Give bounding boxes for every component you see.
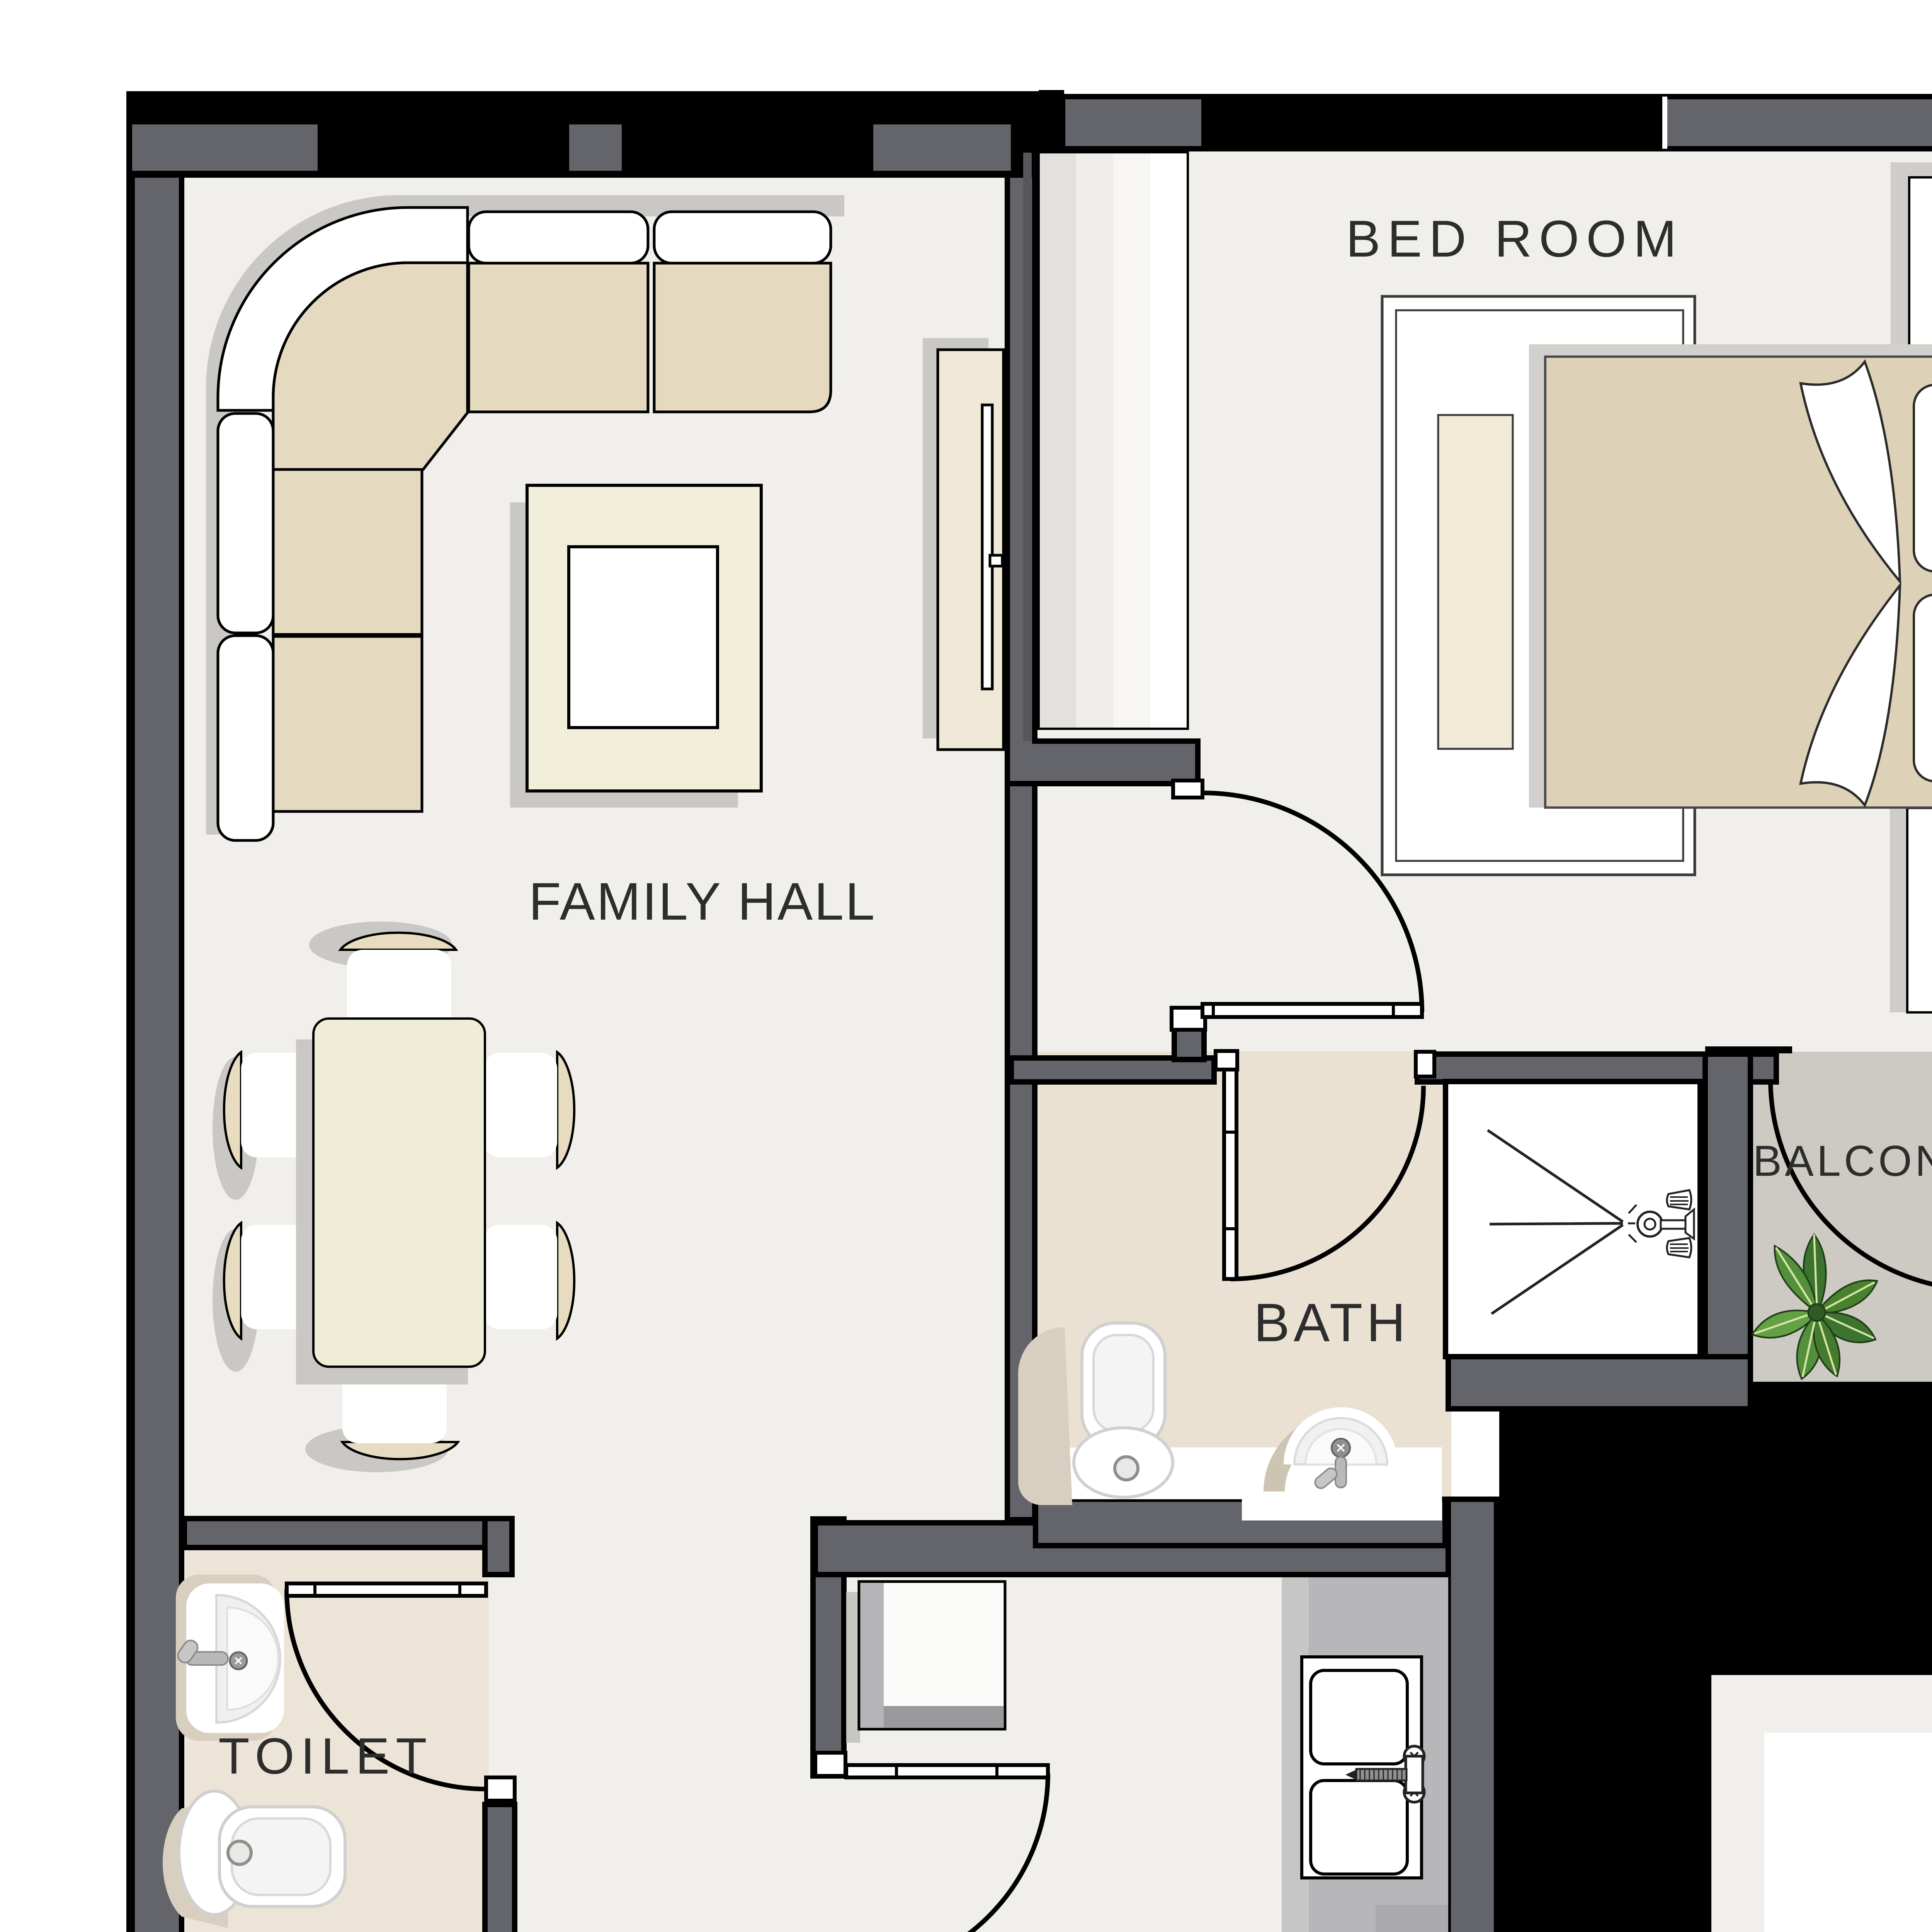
svg-text:BED ROOM: BED ROOM (1346, 210, 1684, 268)
svg-text:TOILET: TOILET (218, 1728, 433, 1784)
svg-text:BALCONY: BALCONY (1753, 1137, 1932, 1185)
svg-text:BATH: BATH (1254, 1292, 1410, 1353)
svg-text:FAMILY HALL: FAMILY HALL (529, 872, 876, 931)
